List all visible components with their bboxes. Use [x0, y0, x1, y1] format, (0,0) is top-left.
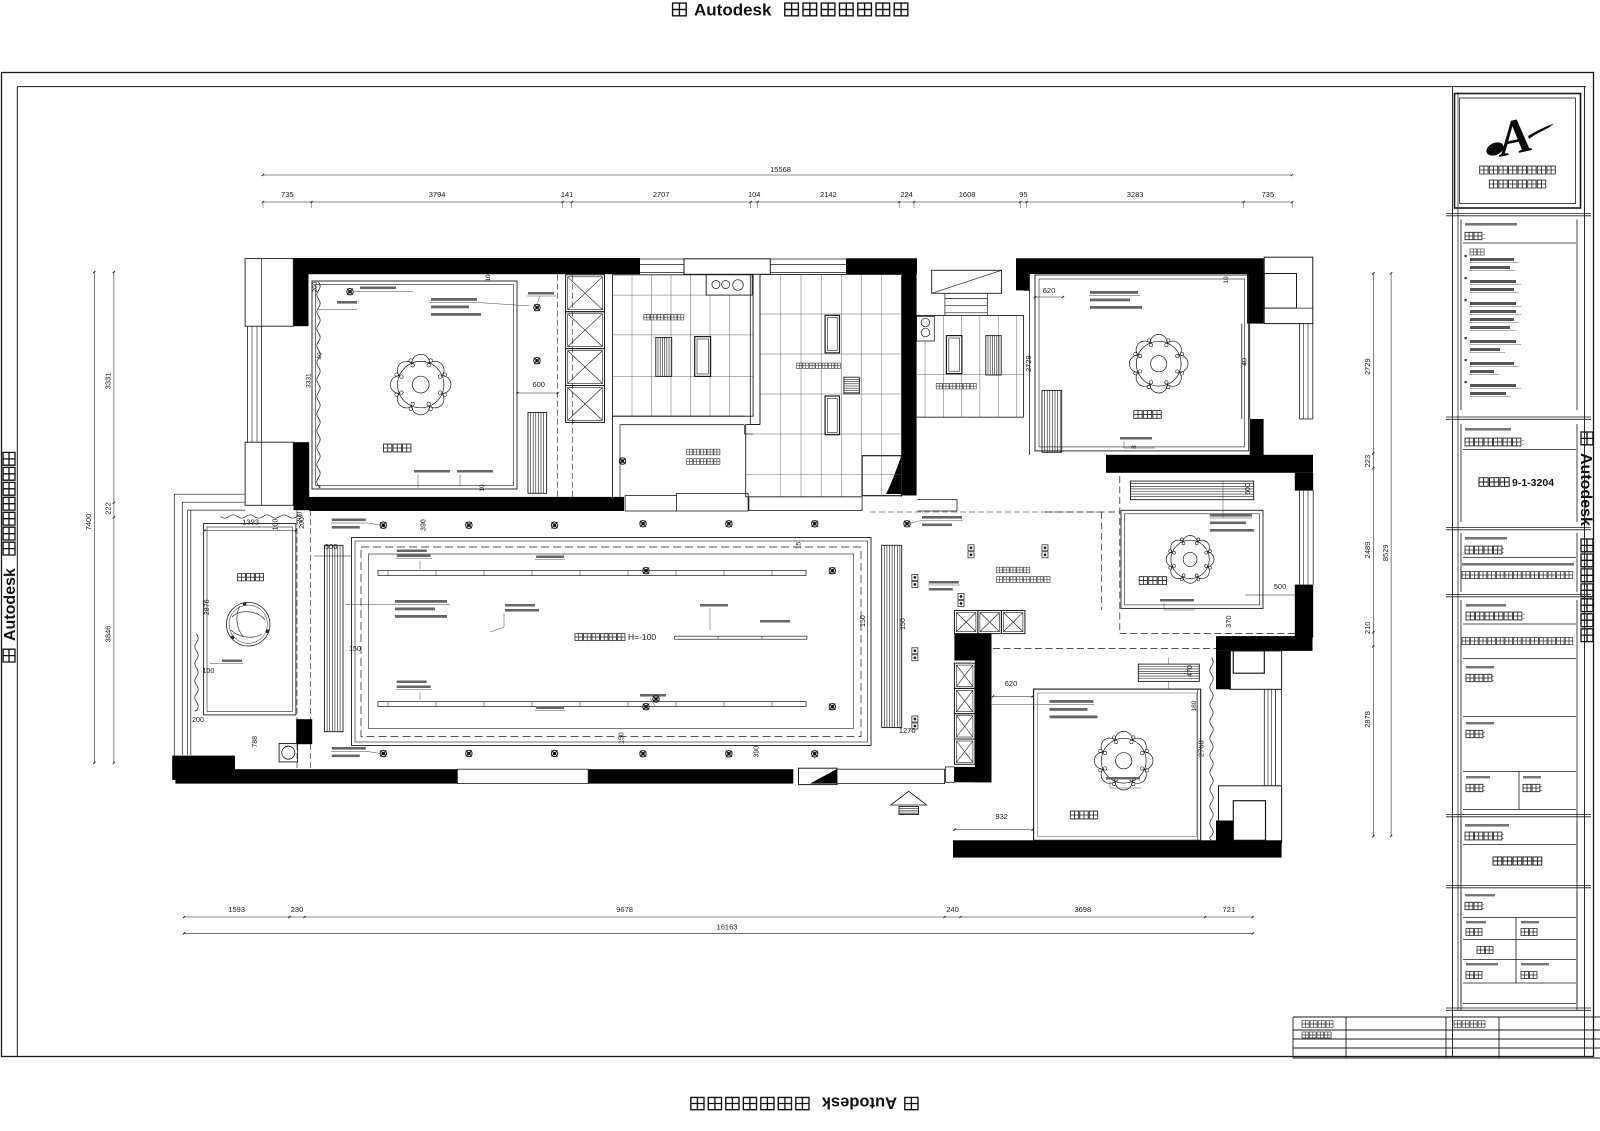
svg-text:150: 150 — [900, 618, 907, 630]
svg-text:932: 932 — [995, 812, 1008, 821]
svg-text:370: 370 — [1224, 615, 1233, 628]
svg-text:223: 223 — [1363, 455, 1372, 468]
svg-text:230: 230 — [291, 905, 304, 914]
svg-text:3331: 3331 — [104, 373, 113, 390]
svg-text:1608: 1608 — [959, 190, 976, 199]
svg-text:200: 200 — [192, 717, 204, 724]
svg-text::: : — [1483, 231, 1486, 241]
svg-text:40: 40 — [1242, 358, 1249, 366]
svg-text:2768: 2768 — [1197, 740, 1206, 757]
svg-text:470: 470 — [1187, 665, 1194, 677]
svg-text:2876: 2876 — [204, 599, 211, 615]
svg-text:H=-100: H=-100 — [628, 632, 656, 642]
svg-text:390: 390 — [421, 519, 428, 531]
svg-text:Autodesk: Autodesk — [1577, 453, 1594, 526]
svg-text::: : — [1483, 729, 1486, 739]
svg-text:Autodesk: Autodesk — [2, 568, 19, 641]
svg-text:240: 240 — [946, 905, 959, 914]
svg-text:390: 390 — [754, 746, 761, 758]
svg-text:16163: 16163 — [717, 923, 738, 932]
svg-text:10: 10 — [485, 274, 492, 282]
svg-text::: : — [1522, 437, 1525, 448]
svg-text:600: 600 — [532, 380, 545, 389]
svg-text:150: 150 — [619, 732, 626, 744]
svg-text:3846: 3846 — [104, 626, 113, 643]
svg-text:104: 104 — [748, 190, 761, 199]
svg-text:95: 95 — [1019, 190, 1027, 199]
svg-text:500: 500 — [325, 542, 338, 551]
svg-text:40: 40 — [317, 352, 324, 360]
svg-text:Autodesk: Autodesk — [694, 1, 772, 20]
svg-text:2707: 2707 — [653, 190, 670, 199]
svg-text:3283: 3283 — [1127, 190, 1144, 199]
svg-text:222: 222 — [104, 502, 113, 515]
svg-text:1393: 1393 — [242, 518, 259, 527]
svg-text::: : — [1523, 611, 1526, 622]
svg-text:2729: 2729 — [1024, 355, 1033, 372]
svg-text:620: 620 — [1043, 286, 1056, 295]
svg-text:Autodesk: Autodesk — [821, 1094, 897, 1112]
svg-text:788: 788 — [252, 736, 259, 748]
svg-text:500: 500 — [1274, 582, 1287, 591]
svg-text:100: 100 — [273, 519, 280, 531]
svg-text:600: 600 — [1245, 483, 1252, 495]
svg-text:141: 141 — [561, 190, 574, 199]
svg-text:9678: 9678 — [616, 905, 633, 914]
svg-text:200: 200 — [299, 517, 306, 529]
svg-text:15: 15 — [796, 542, 803, 550]
svg-text:9-1-3204: 9-1-3204 — [1512, 477, 1554, 489]
svg-text::: : — [1540, 783, 1543, 793]
svg-text::: : — [1502, 545, 1505, 556]
svg-text:15568: 15568 — [770, 165, 791, 174]
svg-text:3698: 3698 — [1074, 905, 1091, 914]
svg-text:8529: 8529 — [1381, 544, 1390, 561]
svg-text:2878: 2878 — [1363, 711, 1372, 728]
svg-text:2489: 2489 — [1363, 542, 1372, 559]
svg-text:3331: 3331 — [306, 373, 313, 388]
svg-text:180: 180 — [1191, 700, 1198, 711]
svg-text:10: 10 — [1223, 276, 1230, 284]
svg-text:7400: 7400 — [84, 514, 93, 531]
svg-text::: : — [1492, 673, 1495, 683]
svg-text:150: 150 — [860, 615, 867, 627]
svg-text:10: 10 — [479, 484, 486, 492]
svg-text:224: 224 — [900, 190, 913, 199]
svg-text:200: 200 — [312, 281, 319, 292]
svg-text:3794: 3794 — [429, 190, 446, 199]
svg-text:100: 100 — [203, 668, 215, 675]
svg-text:620: 620 — [1005, 679, 1018, 688]
svg-text::: : — [1502, 831, 1505, 842]
svg-text::: : — [1482, 901, 1485, 911]
svg-text:1593: 1593 — [228, 905, 245, 914]
svg-text:150: 150 — [349, 646, 361, 653]
svg-text:2142: 2142 — [820, 190, 837, 199]
svg-text:2729: 2729 — [1363, 358, 1372, 375]
svg-text:735: 735 — [281, 190, 294, 199]
svg-text:210: 210 — [1363, 622, 1372, 635]
svg-text:721: 721 — [1223, 905, 1236, 914]
svg-text:735: 735 — [1262, 190, 1275, 199]
svg-text::: : — [1483, 783, 1486, 793]
